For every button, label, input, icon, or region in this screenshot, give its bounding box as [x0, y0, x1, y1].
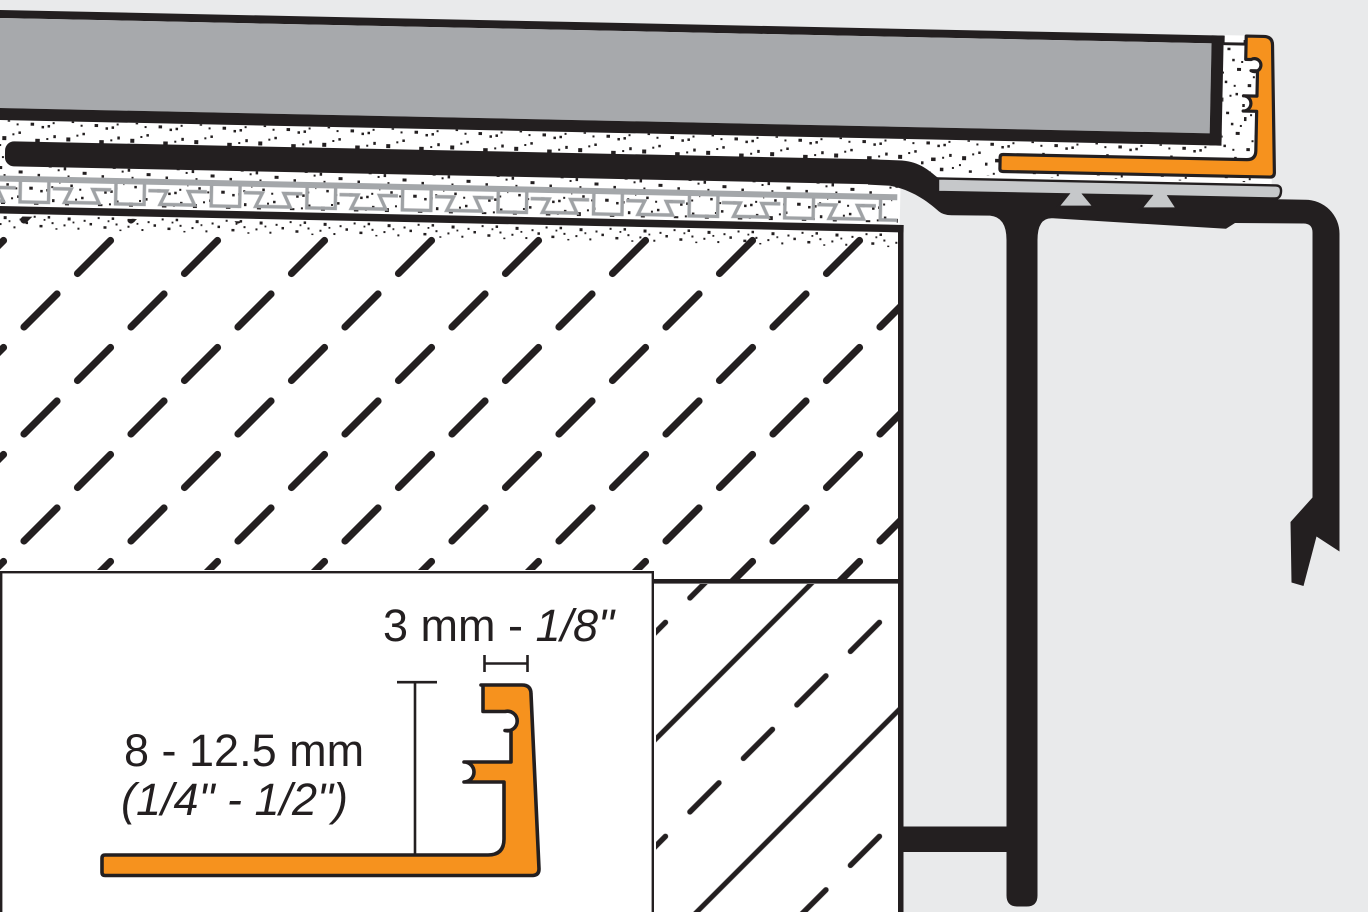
- svg-text:8 - 12.5 mm: 8 - 12.5 mm: [124, 725, 364, 776]
- svg-text:3 mm - 1/8": 3 mm - 1/8": [383, 600, 616, 651]
- svg-text:(1/4" - 1/2"): (1/4" - 1/2"): [121, 774, 348, 825]
